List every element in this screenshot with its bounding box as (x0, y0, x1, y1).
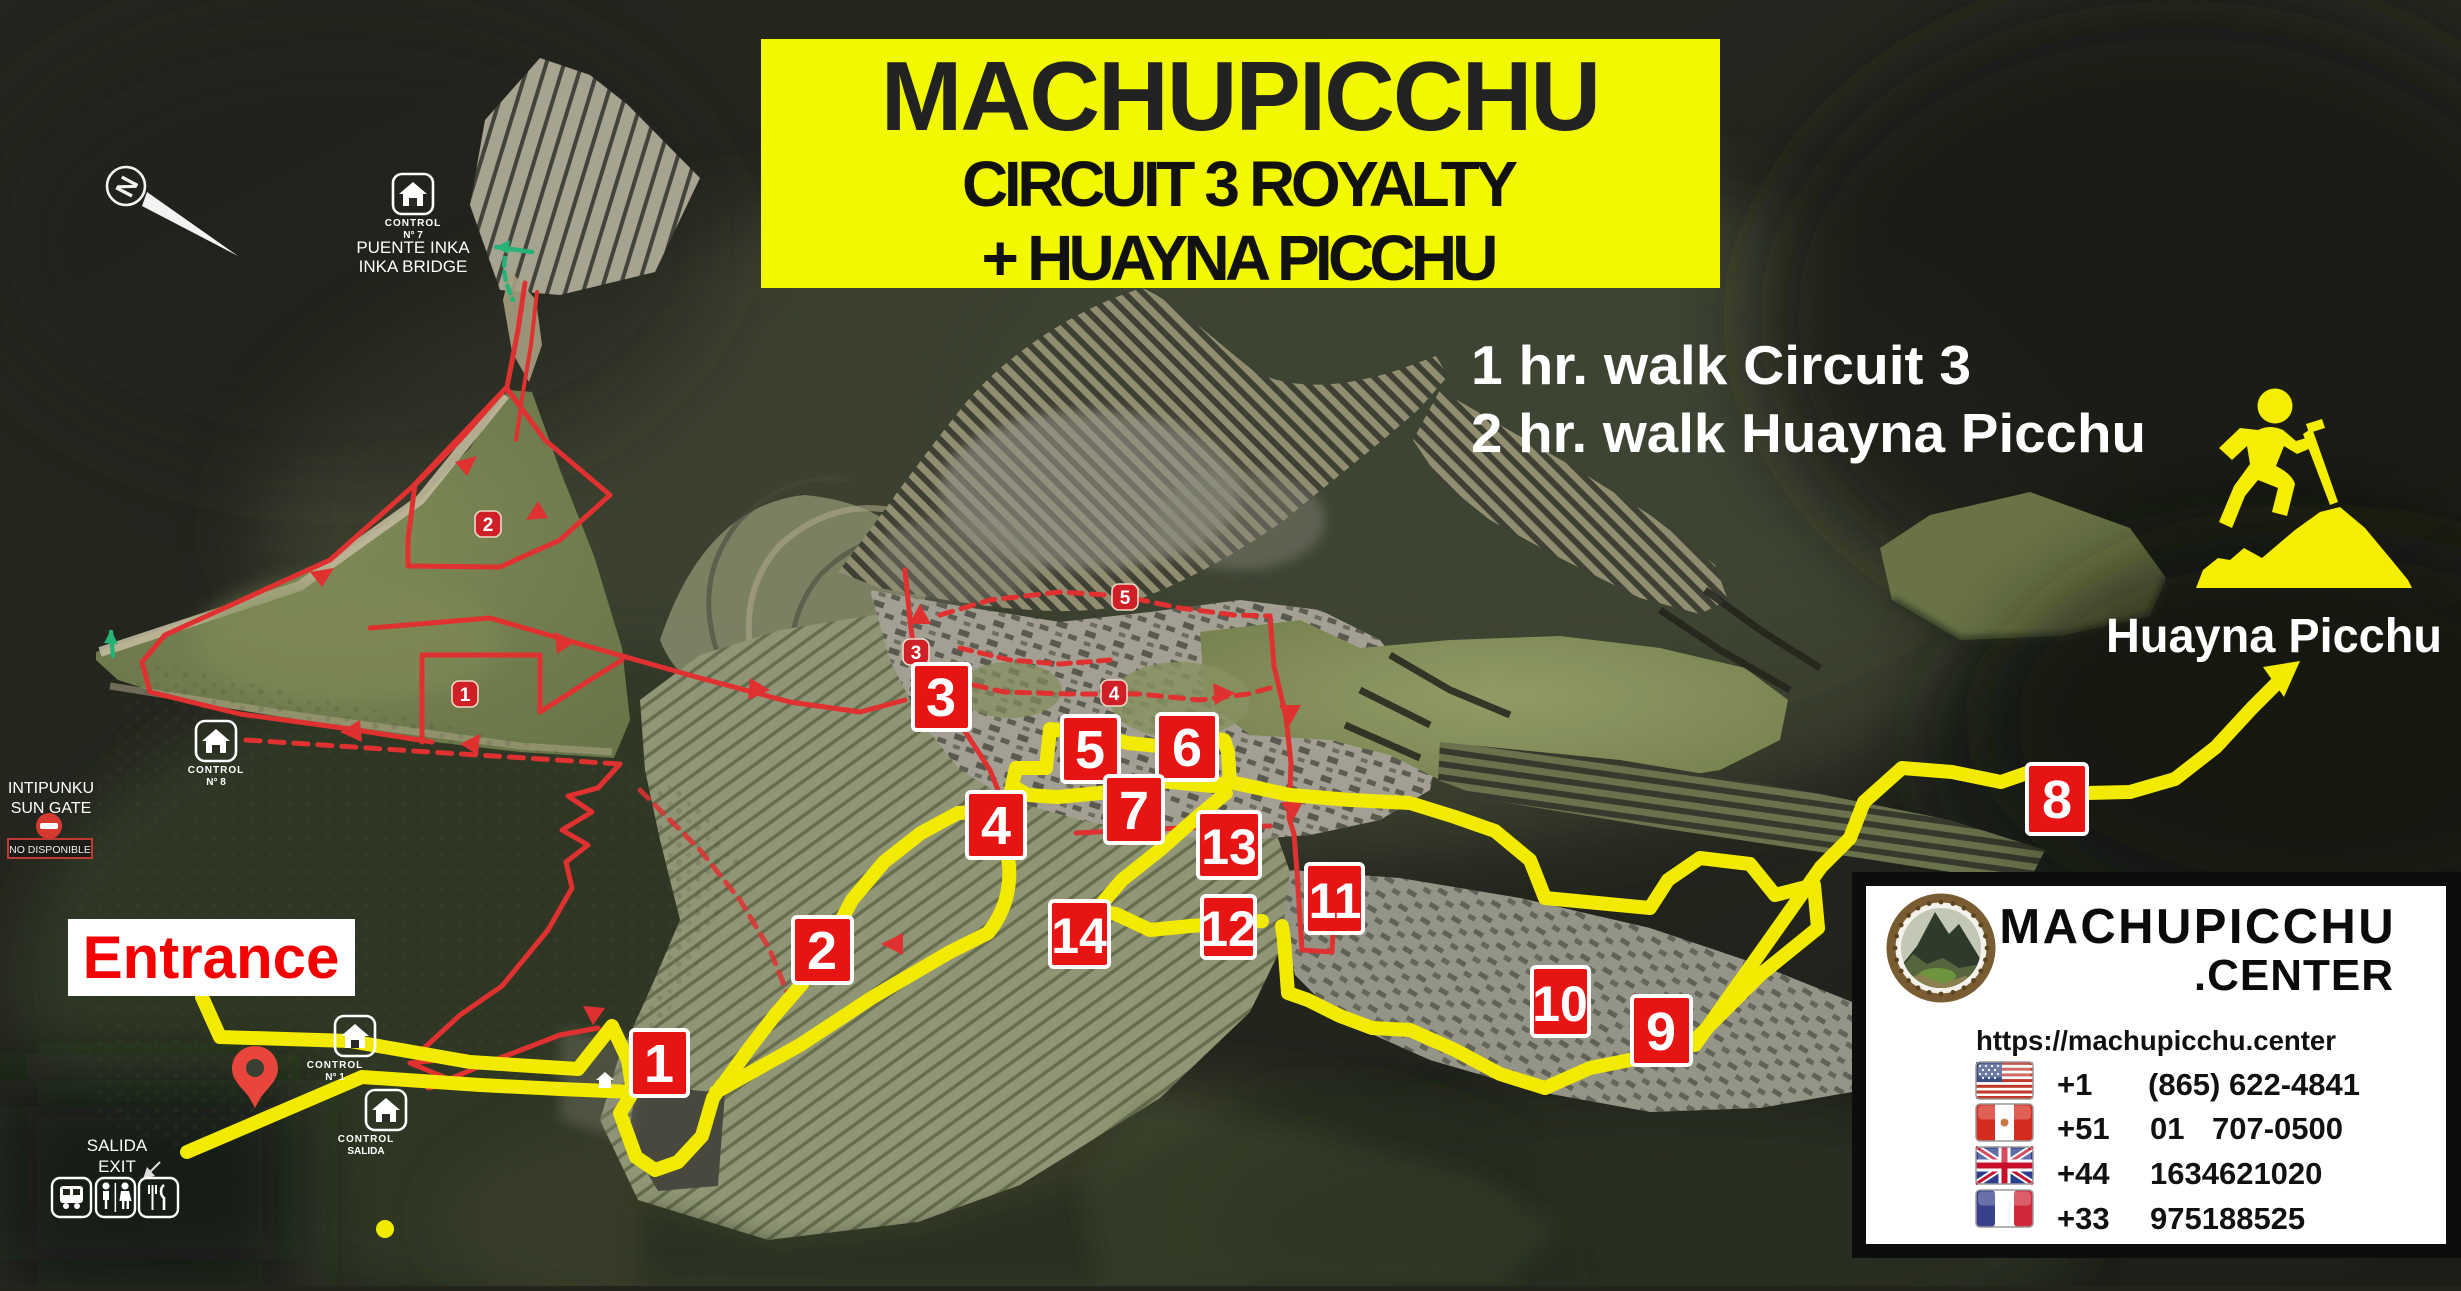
svg-text:975188525: 975188525 (2150, 1201, 2305, 1236)
svg-text:MACHUPICCHU: MACHUPICCHU (1999, 900, 2396, 954)
svg-text:3: 3 (926, 668, 956, 728)
svg-text:N° 1: N° 1 (325, 1072, 345, 1083)
svg-text:PUENTE INKA: PUENTE INKA (356, 238, 470, 257)
svg-text:11: 11 (1309, 873, 1362, 929)
svg-text:+51: +51 (2057, 1111, 2110, 1146)
svg-text:1634621020: 1634621020 (2150, 1156, 2322, 1191)
svg-text:EXIT: EXIT (98, 1157, 136, 1176)
svg-text:+33: +33 (2057, 1201, 2110, 1236)
svg-text:N° 8: N° 8 (206, 777, 226, 788)
svg-text:1: 1 (644, 1034, 674, 1094)
svg-text:INTIPUNKU: INTIPUNKU (8, 780, 94, 797)
svg-text:12: 12 (1200, 901, 1256, 957)
svg-text:Huayna Picchu: Huayna Picchu (2106, 610, 2442, 663)
svg-text:13: 13 (1201, 819, 1257, 875)
svg-text:CIRCUIT 3 ROYALTY: CIRCUIT 3 ROYALTY (962, 148, 1518, 220)
svg-text:NO DISPONIBLE: NO DISPONIBLE (9, 844, 91, 856)
svg-text:5: 5 (1075, 720, 1105, 780)
svg-text:SALIDA: SALIDA (87, 1136, 148, 1155)
svg-text:01: 01 (2150, 1111, 2184, 1146)
svg-text:1: 1 (460, 685, 471, 706)
svg-text:Entrance: Entrance (83, 924, 340, 991)
svg-text:https://machupicchu.center: https://machupicchu.center (1976, 1025, 2336, 1056)
svg-text:2 hr. walk Huayna Picchu: 2 hr. walk Huayna Picchu (1471, 402, 2146, 464)
svg-text:CONTROL: CONTROL (307, 1060, 363, 1071)
svg-text:2: 2 (483, 515, 494, 536)
svg-text:707-0500: 707-0500 (2212, 1111, 2343, 1146)
svg-text:9: 9 (1646, 1002, 1676, 1062)
svg-text:7: 7 (1119, 781, 1149, 841)
svg-text:2: 2 (807, 921, 837, 981)
svg-text:+44: +44 (2057, 1156, 2110, 1191)
svg-text:SALIDA: SALIDA (347, 1146, 384, 1157)
svg-text:+ HUAYNA PICCHU: + HUAYNA PICCHU (982, 222, 1499, 294)
svg-text:5: 5 (1120, 588, 1131, 609)
svg-text:CONTROL: CONTROL (188, 765, 244, 776)
svg-text:CONTROL: CONTROL (385, 218, 441, 229)
svg-text:MACHUPICCHU: MACHUPICCHU (881, 41, 1599, 151)
svg-text:4: 4 (981, 796, 1011, 856)
svg-text:6: 6 (1172, 718, 1202, 778)
svg-text:8: 8 (2042, 770, 2072, 830)
svg-text:14: 14 (1051, 908, 1107, 964)
svg-text:1 hr. walk Circuit 3: 1 hr. walk Circuit 3 (1471, 334, 1971, 396)
svg-text:4: 4 (1109, 684, 1120, 705)
svg-text:+1: +1 (2057, 1067, 2092, 1102)
svg-text:INKA BRIDGE: INKA BRIDGE (359, 257, 468, 276)
svg-text:3: 3 (911, 643, 922, 664)
svg-text:(865) 622-4841: (865) 622-4841 (2148, 1067, 2360, 1102)
svg-text:.CENTER: .CENTER (2194, 951, 2394, 1000)
svg-text:CONTROL: CONTROL (338, 1134, 394, 1145)
svg-text:10: 10 (1532, 976, 1588, 1032)
